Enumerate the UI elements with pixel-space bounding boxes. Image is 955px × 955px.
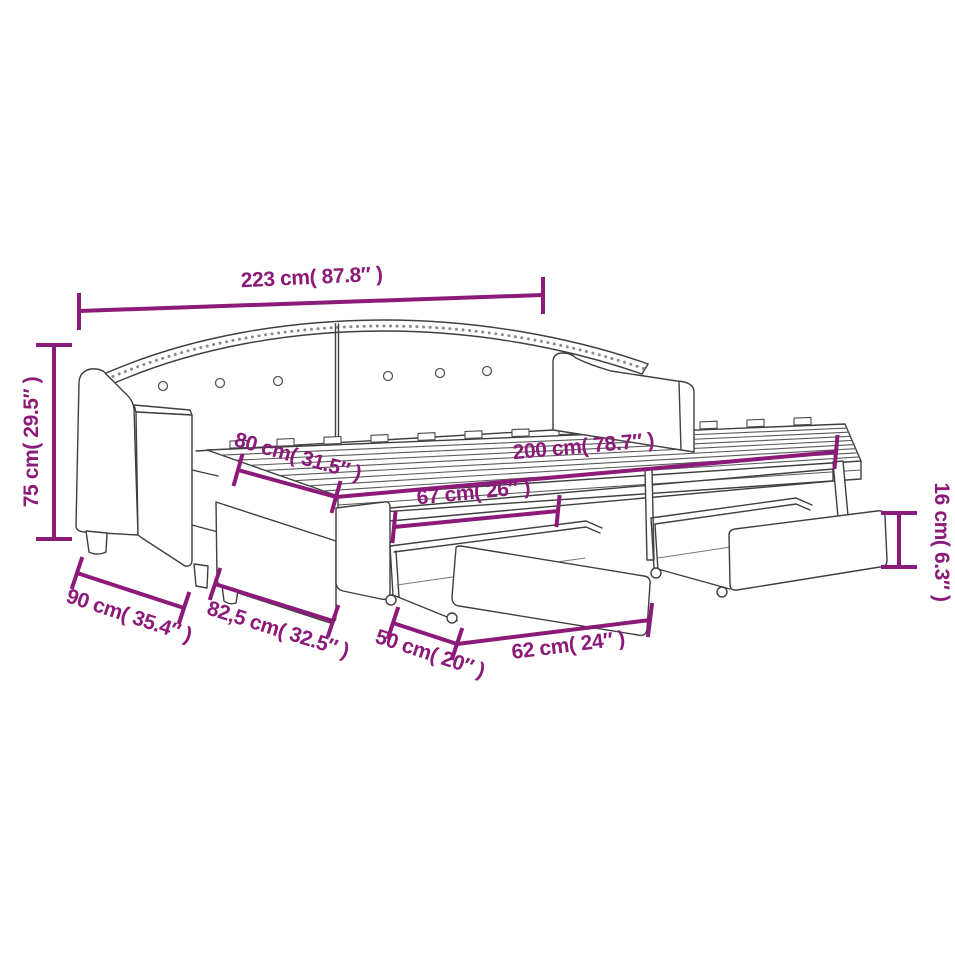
trundle-end-panel [336, 502, 390, 600]
dim-label-drawer-length: 62 cm( 24″ ) [510, 627, 626, 664]
right-drawer [651, 498, 887, 597]
tufting-buttons [159, 367, 492, 391]
headboard-seam [336, 324, 339, 451]
right-drawer-wheels [651, 568, 727, 597]
dim-label-overall-width: 223 cm( 87.8″ ) [240, 263, 383, 292]
dim-label-overall-height: 75 cm( 29.5″ ) [20, 377, 43, 508]
trundle-panels [216, 502, 390, 623]
dim-label-drawer-height: 16 cm( 6.3″ ) [930, 482, 953, 601]
daybed-drawing: 223 cm( 87.8″ ) 75 cm( 29.5″ ) 80 cm( 31… [0, 0, 955, 955]
left-drawer [386, 521, 650, 635]
left-armrest [76, 369, 208, 588]
left-armrest-back-leg [194, 564, 208, 588]
right-end-leg [833, 461, 848, 517]
left-armrest-leg [86, 531, 107, 554]
dim-label-armrest-depth: 90 cm( 35.4″ ) [63, 585, 194, 647]
right-drawer-front [729, 511, 887, 590]
dimension-diagram: 223 cm( 87.8″ ) 75 cm( 29.5″ ) 80 cm( 31… [0, 0, 955, 955]
